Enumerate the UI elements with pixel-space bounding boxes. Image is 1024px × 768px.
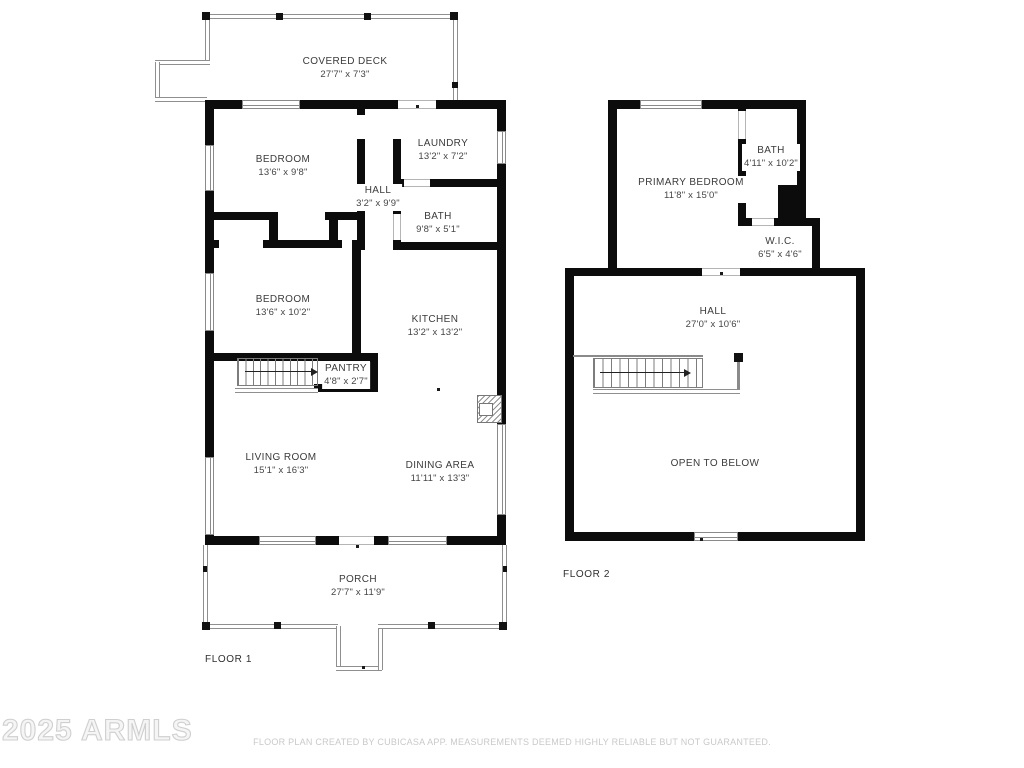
- wall-segment: [565, 268, 702, 276]
- measure-tick: [720, 272, 723, 275]
- measure-tick: [362, 666, 365, 669]
- wall-segment: [357, 109, 365, 115]
- window: [388, 536, 447, 545]
- room-label-porch: PORCH 27'7" x 11'9": [329, 573, 387, 600]
- floor-1-tag: FLOOR 1: [205, 654, 252, 665]
- chimney-hatch: [477, 395, 502, 423]
- room-label-living-room: LIVING ROOM 15'1" x 16'3": [243, 451, 318, 478]
- stair-arrow-head: [684, 369, 691, 377]
- disclaimer-text: FLOOR PLAN CREATED BY CUBICASA APP. MEAS…: [0, 737, 1024, 747]
- window: [242, 100, 300, 109]
- wall-segment: [856, 268, 865, 540]
- room-label-bedroom-2: BEDROOM 13'6" x 10'2": [254, 293, 313, 320]
- stairwell-edge: [593, 389, 740, 394]
- deck-post: [450, 12, 458, 20]
- chimney-block: [778, 185, 806, 219]
- porch-railing: [378, 624, 507, 629]
- porch-step-rail: [336, 626, 341, 670]
- porch-step-rail: [336, 666, 382, 671]
- door-opening: [339, 536, 374, 545]
- deck-railing: [155, 62, 160, 100]
- measure-tick: [416, 105, 419, 108]
- deck-railing: [155, 60, 210, 65]
- chimney-flue: [479, 403, 493, 416]
- deck-railing: [453, 16, 458, 102]
- window: [497, 424, 506, 515]
- window: [205, 273, 214, 331]
- door-opening: [752, 218, 774, 226]
- door-opening: [393, 214, 401, 240]
- room-label-kitchen: KITCHEN 13'2" x 13'2": [406, 313, 465, 340]
- deck-post: [276, 13, 283, 20]
- porch-post: [428, 622, 435, 629]
- deck-railing: [205, 14, 458, 19]
- measure-tick: [437, 388, 440, 391]
- wall-segment: [738, 218, 820, 226]
- deck-railing: [205, 16, 210, 64]
- room-label-covered-deck: COVERED DECK 27'7" x 7'3": [301, 55, 390, 82]
- window: [497, 131, 506, 164]
- room-label-wic: W.I.C. 6'5" x 4'6": [756, 235, 804, 262]
- porch-railing: [203, 624, 338, 629]
- room-label-bath-f2: BATH 4'11" x 10'2": [742, 144, 800, 171]
- stair-direction-arrow: [245, 371, 311, 372]
- porch-post: [202, 622, 210, 630]
- window: [205, 457, 214, 535]
- room-label-primary-bedroom: PRIMARY BEDROOM 11'8" x 15'0": [636, 176, 746, 203]
- wall-segment: [608, 100, 617, 276]
- window: [259, 536, 316, 545]
- floor-plan-canvas: COVERED DECK 27'7" x 7'3" BEDROOM 13'6" …: [0, 0, 1024, 768]
- room-label-hall-f2: HALL 27'0" x 10'6": [684, 305, 743, 332]
- staircase: [237, 358, 318, 386]
- window: [640, 100, 702, 109]
- stair-direction-arrow: [600, 372, 684, 373]
- porch-railing: [203, 545, 208, 628]
- room-label-bedroom-1: BEDROOM 13'6" x 9'8": [254, 153, 312, 180]
- porch-post: [503, 566, 507, 572]
- stairwell-post: [734, 353, 743, 362]
- room-label-bath-f1: BATH 9'8" x 5'1": [414, 210, 462, 237]
- deck-post: [452, 82, 458, 88]
- wall-segment: [565, 268, 574, 540]
- deck-post: [202, 12, 210, 20]
- wall-segment: [393, 242, 506, 250]
- porch-post: [499, 622, 507, 630]
- wall-segment: [269, 212, 278, 248]
- porch-step-rail: [378, 626, 383, 670]
- wall-segment: [352, 240, 365, 248]
- room-label-open-to-below: OPEN TO BELOW: [669, 457, 762, 470]
- window: [205, 145, 214, 191]
- wall-segment: [352, 248, 361, 360]
- wall-segment: [205, 240, 219, 248]
- porch-post: [203, 566, 207, 572]
- room-label-pantry: PANTRY 4'8" x 2'7": [322, 362, 370, 389]
- floor-2-tag: FLOOR 2: [563, 569, 610, 580]
- deck-post: [364, 13, 371, 20]
- stair-edge-line: [235, 388, 318, 393]
- porch-post: [274, 622, 281, 629]
- door-opening: [738, 111, 746, 139]
- measure-tick: [356, 545, 359, 548]
- wall-segment: [740, 268, 865, 276]
- stair-arrow-head: [311, 368, 318, 376]
- room-label-laundry: LAUNDRY 13'2" x 7'2": [416, 137, 470, 164]
- wall-segment: [205, 212, 277, 220]
- door-opening: [404, 179, 430, 187]
- porch-railing: [502, 545, 507, 628]
- wall-segment: [329, 212, 338, 248]
- room-label-hall-f1: HALL 3'2" x 9'9": [354, 184, 402, 211]
- stairwell-edge: [573, 355, 703, 357]
- wall-segment: [608, 100, 806, 109]
- measure-tick: [700, 538, 703, 541]
- room-label-dining-area: DINING AREA 11'11" x 13'3": [404, 459, 477, 486]
- deck-railing: [155, 97, 207, 102]
